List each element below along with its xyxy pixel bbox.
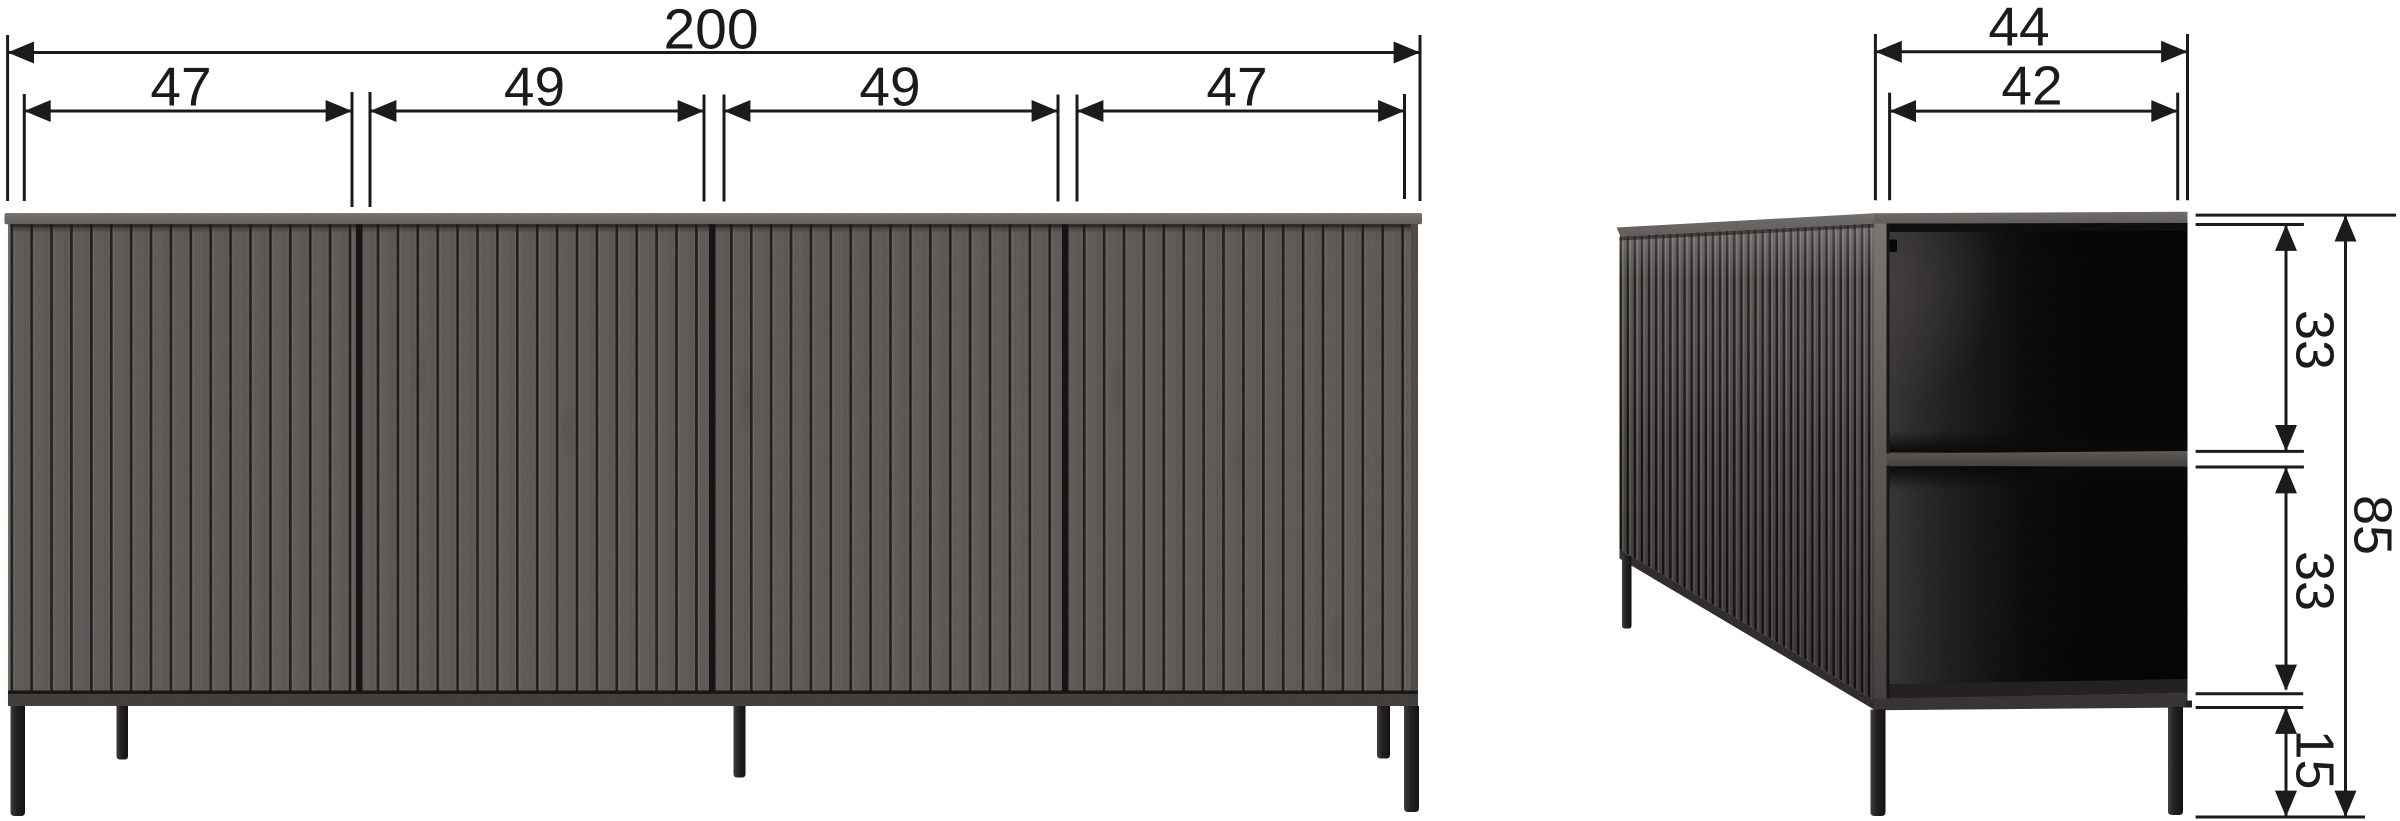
svg-text:200: 200 bbox=[663, 0, 758, 62]
svg-text:15: 15 bbox=[2285, 729, 2345, 789]
svg-text:47: 47 bbox=[1206, 56, 1267, 118]
svg-text:42: 42 bbox=[2001, 55, 2062, 117]
svg-text:49: 49 bbox=[504, 56, 565, 118]
svg-text:47: 47 bbox=[150, 56, 211, 118]
svg-text:33: 33 bbox=[2285, 551, 2345, 611]
svg-text:33: 33 bbox=[2285, 310, 2345, 370]
svg-text:44: 44 bbox=[1988, 0, 2049, 58]
svg-text:49: 49 bbox=[859, 56, 920, 118]
svg-text:85: 85 bbox=[2343, 495, 2400, 555]
